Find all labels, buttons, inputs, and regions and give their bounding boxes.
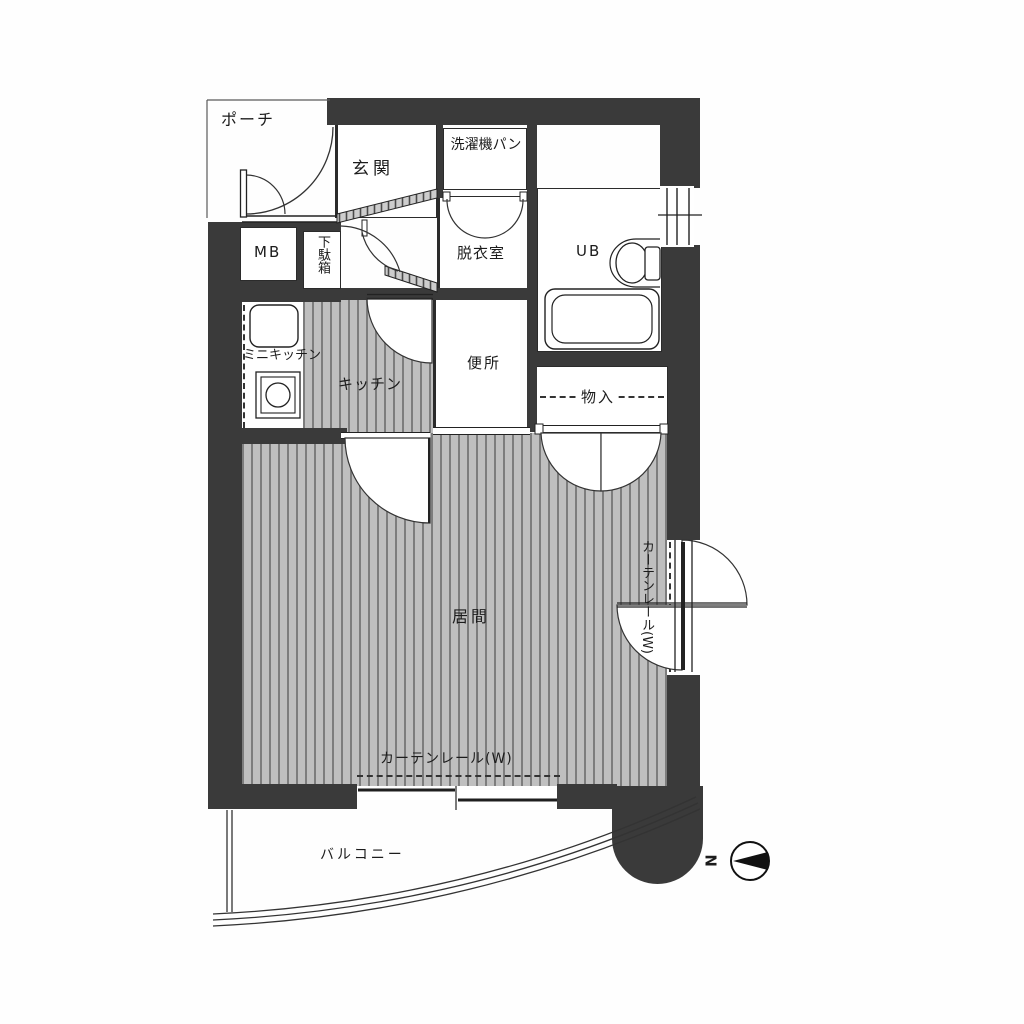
floor-plan: ポーチ 玄関 洗濯機パン MB 下駄箱 脱衣室 UB ミニキッチン キッチン 便… xyxy=(0,0,1024,1024)
kitchen-door-swing xyxy=(345,438,430,523)
bathtub-outer xyxy=(545,289,659,349)
plan-linework xyxy=(0,0,1024,1024)
toilet-tank xyxy=(645,247,660,280)
entrance-step-band xyxy=(337,189,437,223)
hall-step-band xyxy=(385,266,437,292)
label-unit-bath: UB xyxy=(576,243,601,260)
ub-window-lines xyxy=(667,188,689,245)
label-meter-box: MB xyxy=(254,244,281,261)
storage-door-right xyxy=(601,433,661,491)
label-curtain-rail-bottom: カーテンレール(W) xyxy=(380,751,513,767)
label-kitchen: キッチン xyxy=(338,376,402,393)
entrance-door-arc-small xyxy=(246,175,285,214)
entrance-door-leaf xyxy=(241,170,247,217)
balcony-rail-curve-1 xyxy=(213,797,696,914)
label-mini-kitchen: ミニキッチン xyxy=(243,349,321,364)
label-curtain-rail-right: カーテンレール(W) xyxy=(638,540,653,700)
label-washing-machine-pan: 洗濯機パン xyxy=(449,137,523,153)
toilet-bowl xyxy=(616,243,648,283)
label-dressing-room: 脱衣室 xyxy=(457,245,505,262)
label-porch: ポーチ xyxy=(221,111,275,129)
balcony-rail-curve-2 xyxy=(213,803,698,920)
label-entrance: 玄関 xyxy=(352,160,394,180)
stove-burner xyxy=(266,383,290,407)
storage-door-left xyxy=(541,433,601,491)
label-living-room: 居間 xyxy=(452,608,490,626)
hall-door-arc2 xyxy=(362,232,398,271)
label-balcony: バルコニー xyxy=(320,847,405,863)
hall-door-arc xyxy=(341,226,400,272)
label-toilet: 便所 xyxy=(467,355,501,372)
label-storage: 物入 xyxy=(578,389,618,406)
dressing-door-arc-right xyxy=(485,199,523,238)
toilet-door-swing xyxy=(367,298,432,363)
label-compass-north: N xyxy=(704,854,721,867)
mini-kitchen-sink xyxy=(250,305,298,347)
dressing-door-arc-left xyxy=(447,199,485,238)
right-door-glass xyxy=(681,542,685,670)
porch-threshold xyxy=(242,216,337,222)
entrance-door-arc xyxy=(246,127,333,214)
balcony-rail-left xyxy=(227,810,232,912)
label-shoe-cabinet: 下駄箱 xyxy=(314,235,329,274)
